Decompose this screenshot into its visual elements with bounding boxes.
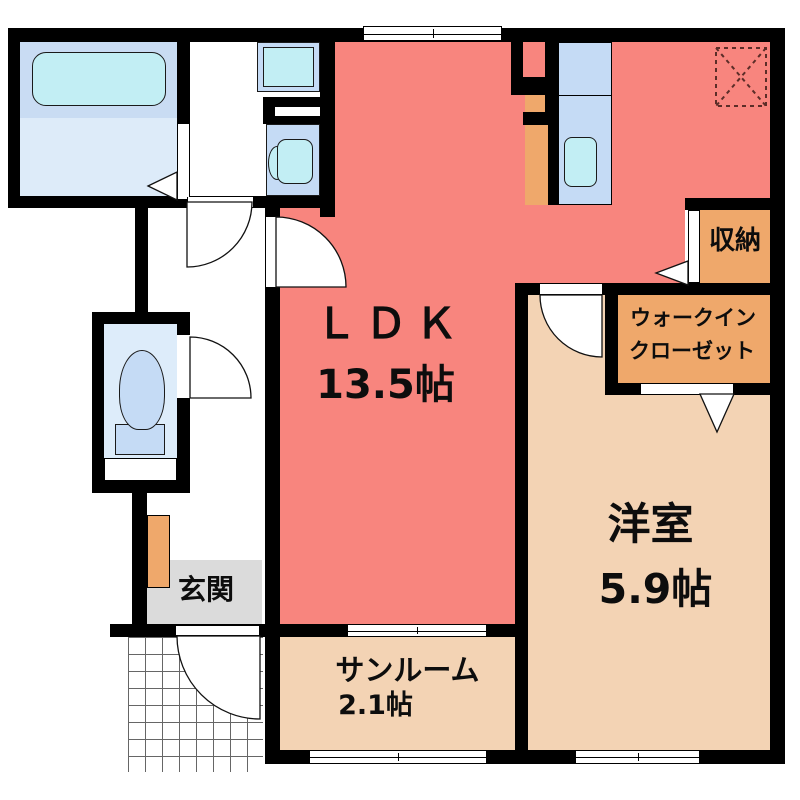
refrigerator-space	[716, 48, 766, 106]
walk-in-closet-label-line1: ウォークイン	[618, 307, 768, 329]
toilet-door-swing	[190, 337, 251, 398]
entrance-door-swing	[177, 636, 260, 719]
ldk-size-label: 13.5帖	[278, 364, 493, 406]
sunroom-label: サンルーム	[300, 655, 515, 685]
western-room-label: 洋室	[558, 503, 743, 548]
sunroom-size-label: 2.1帖	[308, 692, 443, 720]
storage-door-arrow	[656, 261, 688, 285]
entrance-label: 玄関	[160, 575, 252, 604]
ldk-label: ＬＤＫ	[280, 302, 500, 346]
bathroom-door-arrow	[148, 172, 177, 200]
closet-entry-arrow	[700, 394, 734, 432]
walk-in-closet-label-line2: クローゼット	[618, 340, 766, 362]
washroom-door-swing	[187, 202, 252, 267]
storage-label: 収納	[700, 228, 770, 255]
ldk-door-swing	[276, 217, 346, 287]
floor-plan: ＬＤＫ 13.5帖 収納 ウォークイン クローゼット 洋室 5.9帖 サンルーム…	[0, 0, 800, 800]
western-room-size-label: 5.9帖	[558, 568, 753, 611]
western-room-door-swing	[540, 295, 602, 357]
